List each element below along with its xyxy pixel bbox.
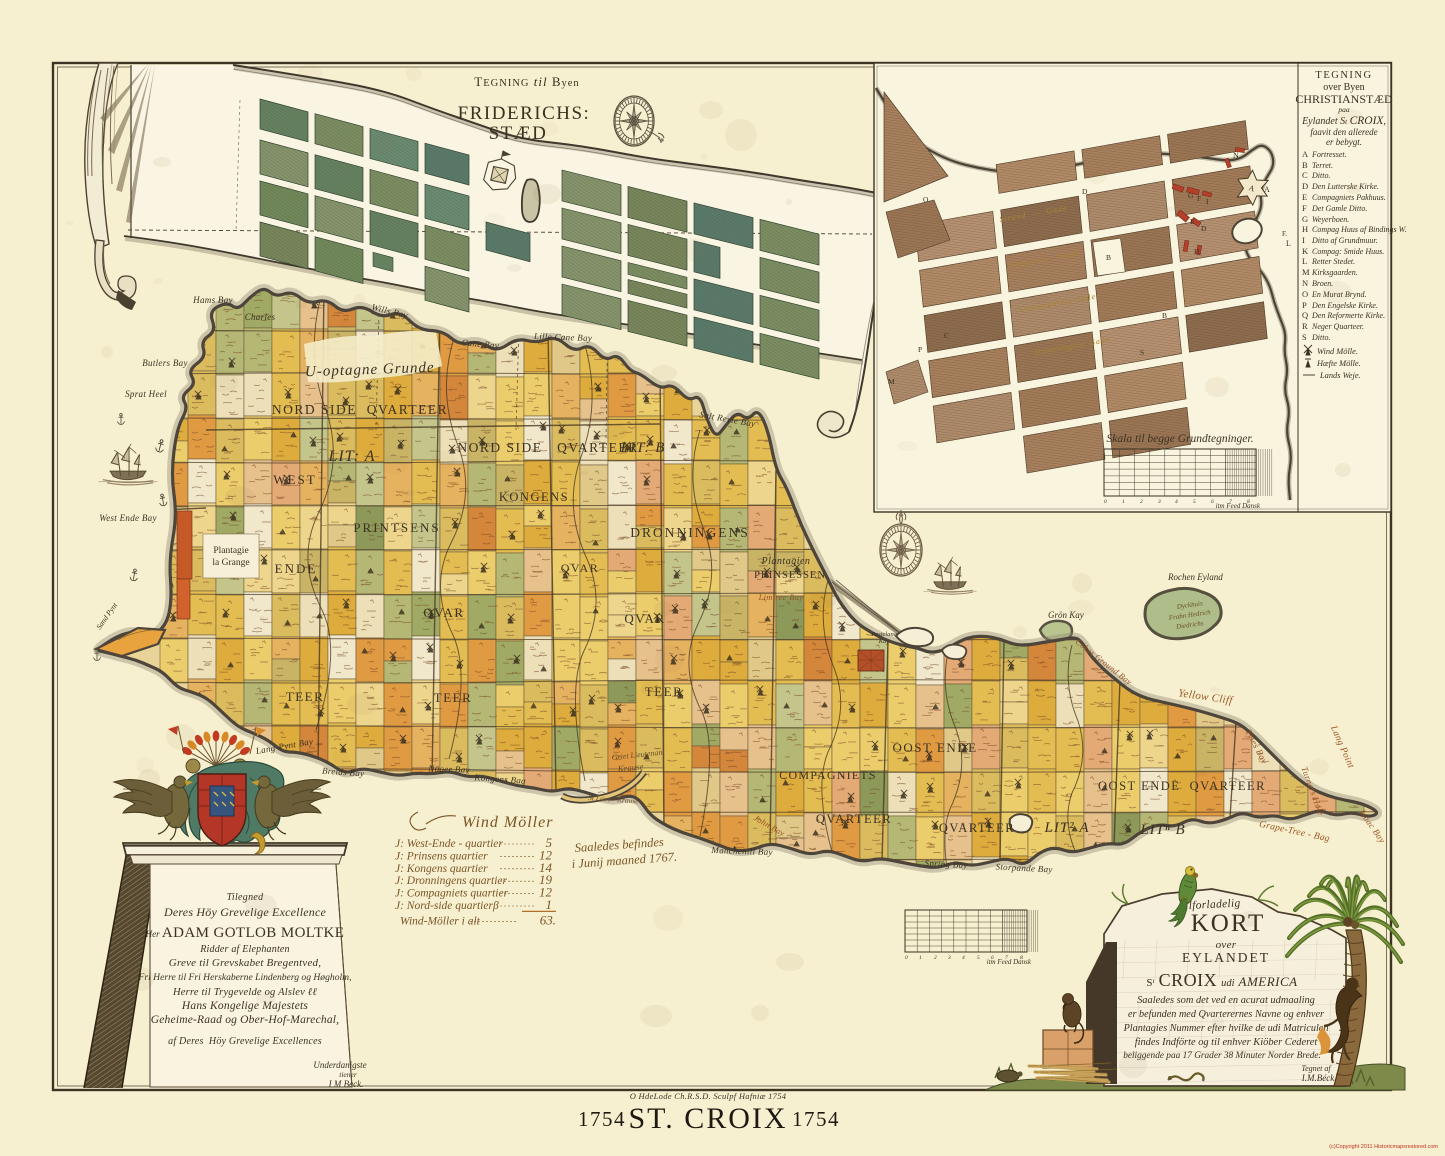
svg-text:OOST ENDE: OOST ENDE: [892, 740, 977, 755]
svg-text:Weyerboen.: Weyerboen.: [1312, 215, 1349, 224]
svg-text:West Ende Bay: West Ende Bay: [99, 513, 157, 523]
svg-text:Terret.: Terret.: [1312, 161, 1333, 170]
svg-text:Den Lutterske Kirke.: Den Lutterske Kirke.: [1311, 182, 1379, 191]
svg-text:(c)Copyright 2011 Historicmaps: (c)Copyright 2011 Historicmapsrestored.c…: [1329, 1144, 1438, 1150]
svg-text:Compag Huus af Bindings W.: Compag Huus af Bindings W.: [1312, 225, 1407, 234]
svg-text:Compagniets Pakhuus.: Compagniets Pakhuus.: [1312, 193, 1386, 202]
svg-text:ENDE: ENDE: [275, 561, 318, 576]
svg-text:Ridder af Elephanten: Ridder af Elephanten: [199, 944, 290, 955]
svg-text:N: N: [1233, 151, 1239, 160]
svg-text:E: E: [1190, 217, 1195, 226]
svg-text:R: R: [1302, 321, 1308, 331]
svg-text:NORD SIDE QVARTEER: NORD SIDE QVARTEER: [457, 440, 638, 455]
svg-text:itm Feed Dansk: itm Feed Dansk: [1216, 502, 1261, 510]
svg-text:H: H: [1194, 247, 1200, 256]
svg-text:CHRISTIANSTÆD: CHRISTIANSTÆD: [1295, 92, 1393, 106]
svg-text:Compag: Smide Huus.: Compag: Smide Huus.: [1312, 247, 1384, 256]
svg-text:Ditto.: Ditto.: [1311, 333, 1330, 342]
svg-text:B: B: [1106, 253, 1111, 262]
svg-text:Charles: Charles: [245, 312, 276, 322]
svg-text:TEER: TEER: [434, 690, 473, 705]
svg-text:TEGNING: TEGNING: [1315, 70, 1372, 81]
svg-text:Tegnet af: Tegnet af: [1301, 1064, 1332, 1073]
svg-text:H: H: [1302, 224, 1308, 234]
svg-text:Wind Mölle.: Wind Mölle.: [1317, 347, 1358, 356]
svg-text:la Grange: la Grange: [212, 558, 249, 568]
svg-text:C: C: [1302, 170, 1308, 180]
svg-text:PRINSESSEN: PRINSESSEN: [754, 570, 826, 581]
svg-text:COMPAGNIETS: COMPAGNIETS: [779, 768, 876, 782]
svg-text:Deres Höy Grevelige Excellence: Deres Höy Grevelige Excellence: [163, 905, 326, 919]
svg-text:D: D: [1302, 181, 1308, 191]
svg-text:3: 3: [1157, 499, 1161, 505]
svg-text:findes Indförte og til enhver: findes Indförte og til enhver Kiöber Ced…: [1135, 1037, 1319, 1048]
svg-text:C: C: [944, 331, 949, 340]
svg-text:L: L: [1302, 256, 1307, 266]
svg-text:Her ADAM GOTLOB MOLTKE: Her ADAM GOTLOB MOLTKE: [145, 925, 345, 941]
svg-text:Lands Weje.: Lands Weje.: [1319, 371, 1361, 380]
svg-text:M: M: [1302, 267, 1310, 277]
svg-text:I M Beck.: I M Beck.: [328, 1079, 364, 1089]
svg-text:QVARTEER: QVARTEER: [816, 812, 892, 826]
svg-text:Limtree Bay: Limtree Bay: [758, 592, 804, 602]
svg-text:N: N: [1302, 278, 1308, 288]
svg-text:J: Dronningens quartier: J: Dronningens quartier: [395, 875, 508, 887]
svg-text:NORD SIDE QVARTEER: NORD SIDE QVARTEER: [272, 402, 448, 417]
svg-text:LITⁿ B: LITⁿ B: [1139, 822, 1185, 838]
svg-text:beliggende paa 17 Grader 38 Mi: beliggende paa 17 Grader 38 Minuter Nord…: [1123, 1051, 1321, 1061]
svg-text:Greve til Grevskabet Bregentve: Greve til Grevskabet Bregentved,: [169, 957, 321, 969]
svg-text:4: 4: [962, 954, 965, 961]
svg-text:er bebygt.: er bebygt.: [1326, 137, 1362, 147]
svg-text:F.: F.: [1282, 230, 1287, 238]
svg-text:Fri Herre til Fri Herskaberne: Fri Herre til Fri Herskaberne Lindenberg…: [138, 972, 352, 983]
svg-text:G: G: [1302, 214, 1308, 224]
svg-text:Kay: Kay: [878, 638, 890, 645]
svg-text:M: M: [888, 377, 895, 386]
svg-text:STÆD: STÆD: [489, 123, 548, 144]
svg-text:er befunden med Qvarterernes: er befunden med Qvarterernes Navne og en…: [1128, 1009, 1324, 1020]
svg-text:Rochen Eyland: Rochen Eyland: [1167, 572, 1223, 582]
svg-text:D: D: [1082, 187, 1088, 196]
svg-text:G: G: [1188, 191, 1194, 200]
svg-text:0: 0: [905, 955, 908, 961]
svg-text:PRINTSENS: PRINTSENS: [353, 520, 440, 535]
svg-text:Neger Quarteer.: Neger Quarteer.: [1311, 322, 1364, 331]
svg-text:DRONNINGENS: DRONNINGENS: [630, 525, 750, 540]
svg-text:af Deres Höy Grevelige Excell: af Deres Höy Grevelige Excellences: [168, 1036, 322, 1047]
svg-text:Plantagie: Plantagie: [213, 546, 248, 556]
svg-text:TEER: TEER: [286, 689, 325, 704]
svg-text:J: Nord-side quartierβ: J: Nord-side quartierβ: [395, 900, 499, 912]
svg-text:itm Feed Dansk: itm Feed Dansk: [987, 958, 1032, 966]
svg-text:QVAR: QVAR: [561, 561, 599, 575]
svg-text:E: E: [1302, 192, 1307, 202]
svg-text:Den Engelske Kirke.: Den Engelske Kirke.: [1311, 301, 1378, 310]
svg-text:FRIDERICHS:: FRIDERICHS:: [458, 103, 591, 124]
svg-text:3: 3: [947, 955, 951, 961]
svg-text:I: I: [1302, 235, 1305, 245]
svg-text:P: P: [918, 345, 922, 354]
svg-text:Kirksgaarden.: Kirksgaarden.: [1311, 268, 1358, 277]
svg-text:A: A: [1302, 149, 1309, 159]
svg-text:1754: 1754: [578, 1107, 626, 1131]
svg-text:Hams Bay: Hams Bay: [192, 295, 233, 305]
svg-text:QVAR: QVAR: [423, 605, 464, 620]
svg-text:Fortresset.: Fortresset.: [1311, 150, 1347, 159]
svg-text:D: D: [1201, 224, 1207, 233]
svg-text:Den Reformerte Kirke.: Den Reformerte Kirke.: [1311, 311, 1385, 320]
svg-text:Hæfte Mölle.: Hæfte Mölle.: [1316, 359, 1361, 368]
svg-text:Retter Stedet.: Retter Stedet.: [1311, 257, 1355, 266]
svg-text:Nöger Bay: Nöger Bay: [427, 763, 470, 774]
svg-text:Plantagien: Plantagien: [761, 556, 811, 567]
svg-text:Wind Möller: Wind Möller: [462, 814, 553, 831]
svg-text:WEST: WEST: [273, 472, 316, 487]
svg-text:Underdanigste: Underdanigste: [313, 1060, 366, 1070]
svg-text:6: 6: [1211, 499, 1214, 505]
svg-text:F: F: [1197, 194, 1201, 203]
svg-text:B: B: [1302, 160, 1308, 170]
svg-text:Saaledes som det ved en acurat: Saaledes som det ved en acurat udmaaling: [1137, 995, 1315, 1006]
svg-text:Wind-Möller i alt: Wind-Möller i alt: [400, 915, 481, 927]
svg-text:J: Compagniets quartier: J: Compagniets quartier: [395, 888, 509, 900]
svg-text:Geheime-Raad og Ober-Hof-Marec: Geheime-Raad og Ober-Hof-Marechal,: [151, 1014, 340, 1026]
svg-text:S: S: [1302, 332, 1307, 342]
svg-text:2: 2: [1140, 499, 1143, 505]
svg-text:LІT: A: LІT: A: [327, 448, 375, 465]
svg-text:Pestelane: Pestelane: [870, 631, 896, 638]
svg-text:J: Prinsens quartier: J: Prinsens quartier: [395, 850, 488, 862]
svg-text:QVARTEER: QVARTEER: [939, 821, 1015, 835]
svg-text:F: F: [1302, 203, 1307, 213]
svg-text:A: A: [1264, 185, 1270, 194]
svg-text:O: O: [1302, 289, 1308, 299]
svg-text:Plantagies Nummer efter hvilke: Plantagies Nummer efter hvilke de udi Ma…: [1123, 1023, 1329, 1034]
svg-text:O: O: [923, 195, 929, 204]
svg-text:Ditto.: Ditto.: [1311, 171, 1330, 180]
svg-text:ST. CROIX: ST. CROIX: [628, 1102, 787, 1135]
svg-text:LIT: B: LIT: B: [620, 440, 666, 456]
svg-text:1: 1: [546, 897, 553, 912]
svg-text:Det Gamle Ditto.: Det Gamle Ditto.: [1311, 204, 1367, 213]
svg-text:Herre til Trygevelde og Alslev: Herre til Trygevelde og Alslev ℓℓ: [172, 987, 317, 998]
svg-text:tiener: tiener: [339, 1070, 357, 1079]
svg-text:Butlers Bay: Butlers Bay: [142, 358, 188, 368]
svg-text:faavit den allerede: faavit den allerede: [1310, 127, 1377, 137]
svg-text:Hans Kongelige Majestets: Hans Kongelige Majestets: [181, 1000, 308, 1012]
svg-text:OOST ENDE QVARTEER: OOST ENDE QVARTEER: [1098, 779, 1266, 793]
svg-text:1: 1: [919, 955, 922, 961]
svg-text:4: 4: [1175, 498, 1178, 505]
svg-text:I.M.Béck: I.M.Béck: [1301, 1073, 1335, 1083]
svg-text:J: Kongens quartier: J: Kongens quartier: [395, 863, 488, 875]
svg-text:J: West-Ende - quartier: J: West-Ende - quartier: [395, 838, 503, 850]
svg-text:Skala til begge Grundtegninger: Skala til begge Grundtegninger.: [1107, 433, 1254, 445]
svg-text:O HdeLode Ch.R.S.D. Sculpf Haf: O HdeLode Ch.R.S.D. Sculpf Hafniæ 1754: [630, 1091, 787, 1101]
svg-text:Q: Q: [1302, 310, 1308, 320]
svg-text:L: L: [1286, 239, 1291, 248]
svg-text:63.: 63.: [540, 912, 556, 927]
svg-text:P: P: [1302, 300, 1307, 310]
svg-text:2: 2: [934, 955, 937, 961]
svg-text:EYLANDET: EYLANDET: [1182, 950, 1270, 965]
svg-text:Sprat Heel: Sprat Heel: [125, 389, 167, 399]
svg-text:5: 5: [977, 955, 980, 961]
svg-text:K: K: [1302, 246, 1309, 256]
svg-text:0: 0: [1104, 499, 1107, 505]
svg-text:1: 1: [1122, 499, 1125, 505]
svg-text:S: S: [1140, 348, 1144, 357]
svg-text:1754: 1754: [792, 1107, 840, 1131]
svg-text:B: B: [1162, 311, 1167, 320]
svg-text:KONGENS: KONGENS: [499, 490, 569, 504]
svg-text:Ditto af Grundmuur.: Ditto af Grundmuur.: [1311, 236, 1378, 245]
svg-text:Lille Cane Bay: Lille Cane Bay: [533, 331, 593, 343]
svg-text:LIT² A: LIT² A: [1043, 820, 1089, 836]
svg-text:5: 5: [1193, 499, 1196, 505]
